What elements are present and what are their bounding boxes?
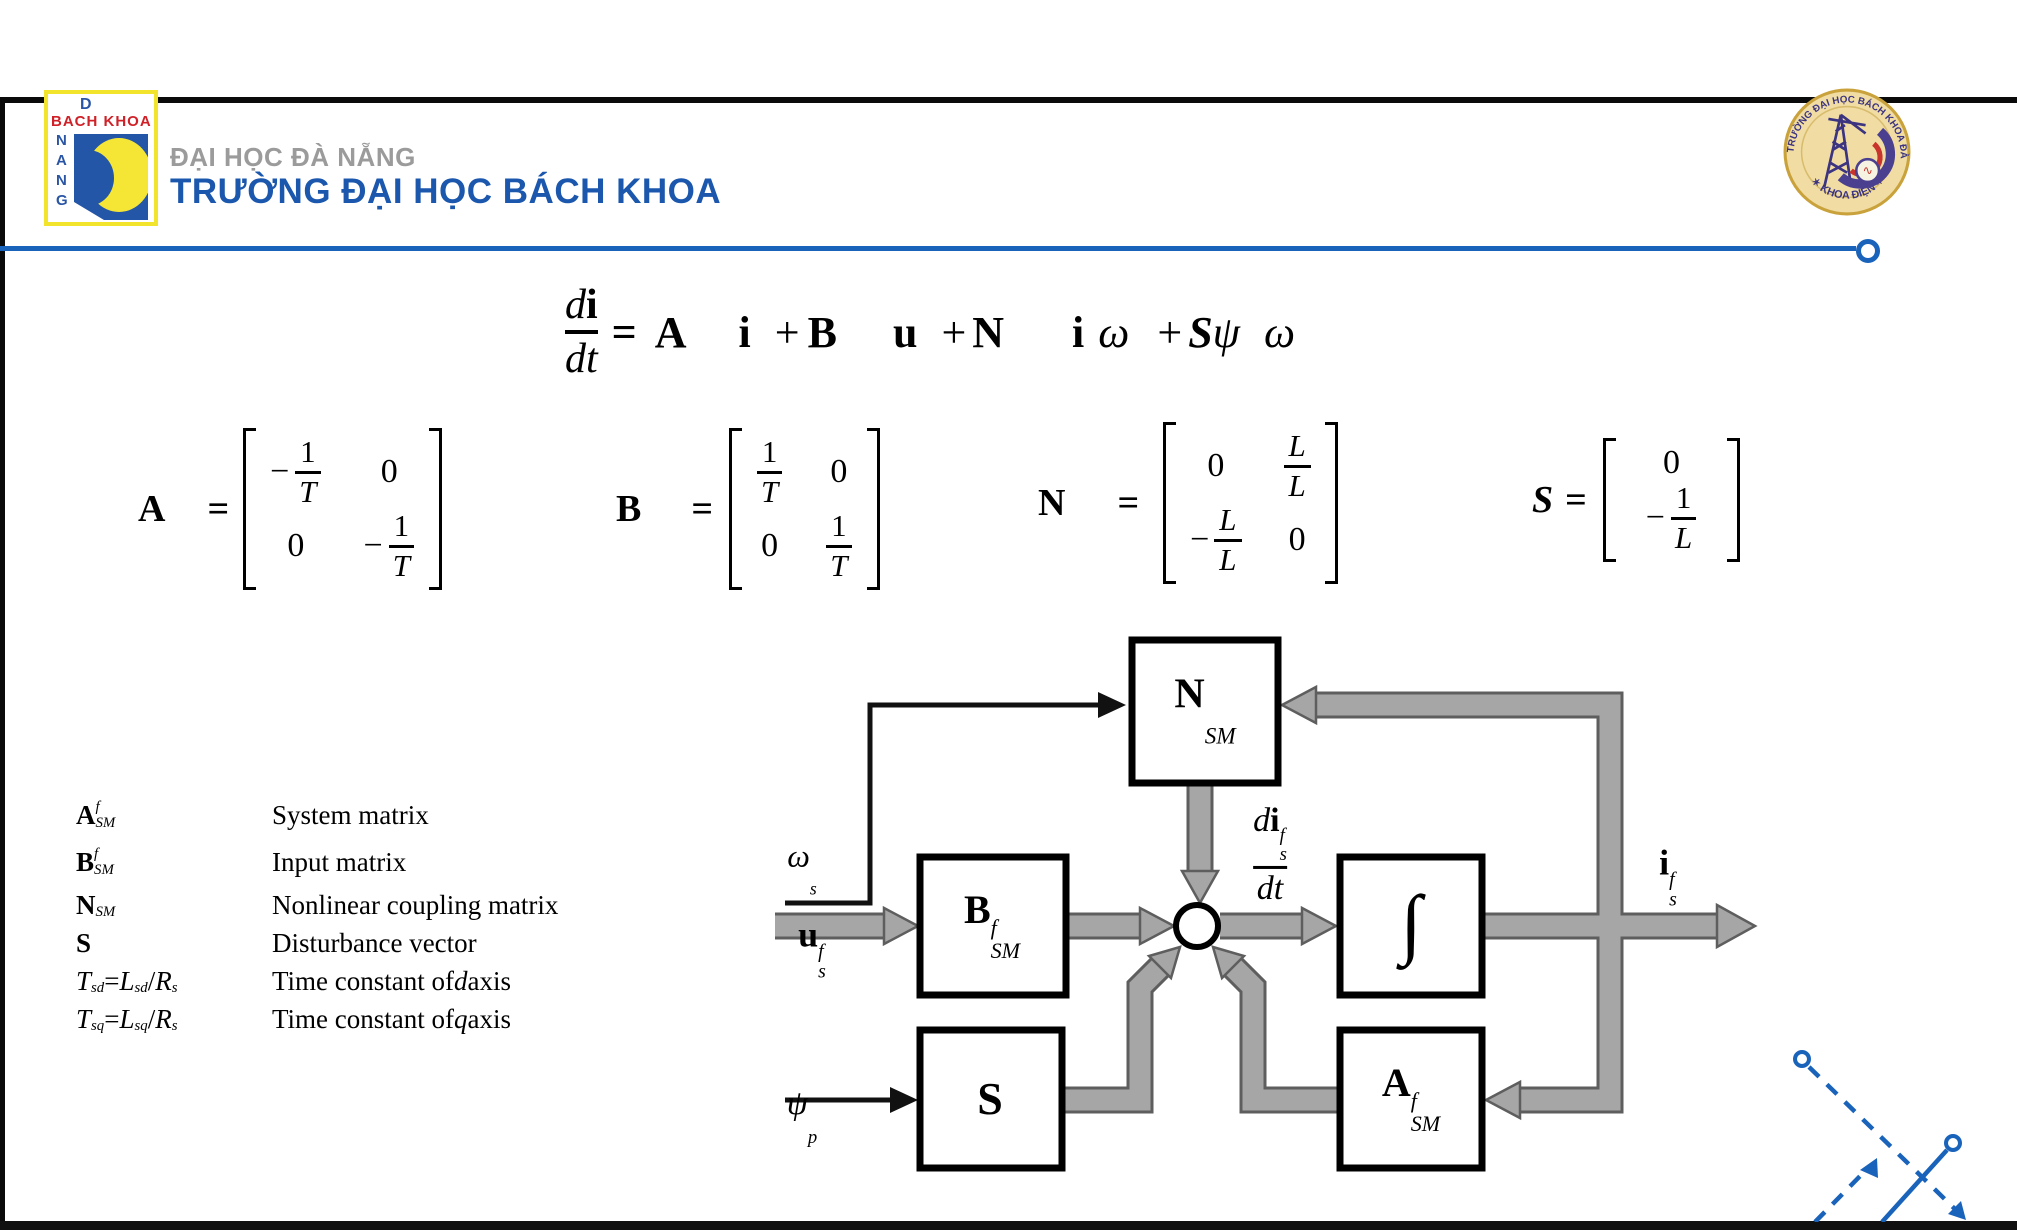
header-rule bbox=[0, 246, 1856, 251]
matrix-entry-text: L bbox=[1675, 520, 1692, 555]
legend-symbol: N SM bbox=[76, 886, 272, 924]
text-run: fSM bbox=[1411, 1090, 1440, 1135]
text-run: ψ bbox=[1213, 307, 1240, 358]
text-run: fs bbox=[1280, 826, 1287, 864]
decoration-arrowhead-down bbox=[1948, 1201, 1966, 1220]
text-run: N bbox=[76, 890, 96, 921]
minus-sign: − bbox=[1190, 523, 1209, 557]
matrix-label: S bbox=[1532, 478, 1553, 522]
text-run: q bbox=[454, 1004, 468, 1035]
matrix-cell: 1T bbox=[825, 510, 852, 582]
integrator-symbol: ∫ bbox=[1400, 884, 1421, 962]
left-bracket bbox=[729, 428, 742, 590]
matrix-entry-text: T bbox=[299, 474, 316, 509]
slide-page: D BACH KHOA N A N G ĐẠI HỌC ĐÀ NẴNG TRƯỜ… bbox=[0, 0, 2017, 1230]
header-rule-dot bbox=[1856, 239, 1880, 263]
bracketed-matrix: −1T00−1T bbox=[243, 428, 442, 590]
text-run: axis bbox=[468, 1004, 512, 1035]
matrix-entry-text: 1 bbox=[762, 434, 778, 469]
minus-sign: − bbox=[364, 529, 383, 563]
legend-symbol: BfSM bbox=[76, 839, 272, 886]
text-run: A bbox=[138, 488, 165, 530]
matrix-label: B bbox=[616, 487, 641, 531]
legend-description: System matrix bbox=[272, 792, 558, 839]
legend-symbol: S bbox=[76, 924, 272, 962]
text-run: B bbox=[964, 887, 991, 932]
matrix-N: N=0LL−LL0 bbox=[1038, 422, 1338, 584]
psi-p-label: ψ p bbox=[787, 1087, 817, 1147]
decoration-arrowhead-up bbox=[1860, 1158, 1878, 1178]
u-s-f-label: ufs bbox=[798, 916, 826, 981]
block-diagram-svg bbox=[770, 615, 1770, 1215]
right-bracket bbox=[429, 428, 442, 590]
text-run: B bbox=[616, 488, 641, 530]
i-s-f-label: ifs bbox=[1659, 844, 1677, 909]
text-run: d bbox=[1257, 870, 1274, 907]
slide-bottom-bar bbox=[0, 1221, 2017, 1230]
matrix-entry-text: L bbox=[1289, 468, 1306, 503]
text-run: fSM bbox=[991, 917, 1020, 962]
text-run: Input matrix bbox=[272, 847, 406, 878]
legend-description: Time constant of d axis bbox=[272, 962, 558, 1000]
text-run: N bbox=[1038, 482, 1065, 524]
legend-description: Nonlinear coupling matrix bbox=[272, 886, 558, 924]
text-run: fSM bbox=[96, 800, 116, 830]
matrix-cell: 0 bbox=[1289, 523, 1306, 557]
equation-numerator: di bbox=[565, 283, 598, 327]
text-run: i bbox=[586, 282, 598, 328]
matrix-B: B=1T001T bbox=[616, 428, 880, 590]
text-run: Time constant of bbox=[272, 1004, 454, 1035]
matrix-cell: LL bbox=[1284, 430, 1311, 502]
matrix-grid: 0−1L bbox=[1616, 438, 1727, 562]
matrix-cell: −LL bbox=[1190, 504, 1241, 576]
text-run: S bbox=[1188, 307, 1212, 358]
matrix-entry-text: 0 bbox=[1289, 523, 1306, 557]
bsm-block-label: BfSM bbox=[964, 890, 1020, 962]
didt-numerator: difs bbox=[1253, 803, 1287, 864]
bracketed-matrix: 0−1L bbox=[1603, 438, 1740, 562]
logo-letter-n1: N bbox=[56, 132, 67, 149]
text-run: S bbox=[76, 928, 91, 959]
matrix-grid: 1T001T bbox=[742, 428, 867, 590]
decoration-dashed-line-2 bbox=[1815, 1168, 1868, 1222]
didt-fraction: difs dt bbox=[1253, 803, 1287, 907]
matrix-entry-text: 1 bbox=[300, 434, 316, 469]
text-run: d bbox=[1253, 802, 1270, 839]
omega-s-label: ω s bbox=[787, 840, 816, 899]
text-run: i bbox=[1270, 802, 1279, 839]
equals-sign: = bbox=[1117, 481, 1139, 525]
text-run: = bbox=[612, 307, 637, 358]
left-bracket bbox=[243, 428, 256, 590]
state-equation: di dt =Ai+Bu+Niω+Sψω bbox=[565, 283, 1295, 381]
matrix-entry-text: 0 bbox=[381, 455, 398, 489]
matrix-entry-text: 0 bbox=[1207, 449, 1224, 483]
matrix-label: A bbox=[138, 487, 165, 531]
matrix-label: N bbox=[1038, 481, 1065, 525]
minus-sign: − bbox=[1646, 501, 1665, 535]
decoration-ring-1 bbox=[1795, 1052, 1809, 1066]
text-run: sd bbox=[91, 966, 104, 996]
legend-symbol: AfSM bbox=[76, 792, 272, 839]
matrix-entry-text: 1 bbox=[394, 508, 410, 543]
text-run: B bbox=[76, 847, 94, 878]
text-run: ω bbox=[1098, 307, 1129, 358]
bracketed-matrix: 1T001T bbox=[729, 428, 880, 590]
text-run: B bbox=[808, 307, 837, 358]
matrix-entry-text: L bbox=[1289, 428, 1306, 463]
decoration-dashed-line-1 bbox=[1809, 1067, 1958, 1212]
matrix-entry-text: T bbox=[830, 548, 847, 583]
text-run: u bbox=[798, 914, 818, 954]
text-run: + bbox=[1157, 307, 1182, 358]
text-run: R bbox=[155, 1004, 172, 1035]
text-run: SM bbox=[1205, 701, 1236, 748]
seal-sine-symbol: ∿ bbox=[1862, 164, 1872, 178]
text-run: axis bbox=[468, 966, 512, 997]
bach-khoa-logo: D BACH KHOA N A N G bbox=[44, 90, 158, 226]
text-run: d bbox=[454, 966, 468, 997]
right-bracket bbox=[867, 428, 880, 590]
text-run: s bbox=[172, 1004, 178, 1034]
logo-blue-square bbox=[74, 134, 148, 220]
text-run: d bbox=[565, 336, 586, 382]
slide-top-border bbox=[0, 97, 2017, 103]
matrix-entry-text: 0 bbox=[1663, 446, 1680, 480]
logo-letter-a: A bbox=[56, 152, 67, 169]
text-run: T bbox=[76, 966, 91, 997]
matrix-fraction: 1T bbox=[388, 510, 415, 582]
text-run: + bbox=[775, 307, 800, 358]
text-run: t bbox=[586, 336, 598, 382]
text-run: ω bbox=[787, 838, 810, 874]
text-run: s bbox=[810, 862, 817, 898]
summing-junction bbox=[1176, 905, 1218, 947]
matrix-S: S=0−1L bbox=[1532, 438, 1740, 562]
equals-sign: = bbox=[207, 487, 229, 531]
matrix-cell: −1T bbox=[270, 436, 321, 508]
matrix-grid: 0LL−LL0 bbox=[1176, 422, 1325, 584]
matrix-cell: 0 bbox=[761, 529, 778, 563]
decoration-solid-line bbox=[1882, 1150, 1947, 1222]
matrix-entry-text: 1 bbox=[831, 508, 847, 543]
matrix-entry-text: L bbox=[1219, 542, 1236, 577]
matrix-fraction: 1T bbox=[825, 510, 852, 582]
matrix-entry-text: 0 bbox=[287, 529, 304, 563]
text-run: fs bbox=[818, 941, 826, 981]
matrix-grid: −1T00−1T bbox=[256, 428, 429, 590]
text-run: d bbox=[565, 282, 586, 328]
matrix-cell: 0 bbox=[830, 455, 847, 489]
symbol-legend: AfSMSystem matrixBfSMInput matrixN SMNon… bbox=[76, 792, 558, 1038]
nsm-block-label: N SM bbox=[1174, 674, 1235, 749]
equals-sign: = bbox=[1565, 478, 1587, 522]
text-run: sd bbox=[135, 966, 148, 996]
text-run: ω bbox=[1264, 307, 1295, 358]
text-run: N bbox=[972, 307, 1004, 358]
legend-description: Disturbance vector bbox=[272, 924, 558, 962]
di-dt-fraction: di dt bbox=[565, 283, 598, 381]
matrix-cell: 0 bbox=[1207, 449, 1224, 483]
right-bracket bbox=[1325, 422, 1338, 584]
asm-block-label: AfSM bbox=[1382, 1063, 1440, 1135]
text-run: S bbox=[1532, 479, 1553, 521]
matrix-fraction: 1T bbox=[756, 436, 783, 508]
text-run: SM bbox=[96, 890, 116, 920]
equation-rhs: =Ai+Bu+Niω+Sψω bbox=[612, 307, 1295, 358]
block-diagram: N SM BfSM ∫ AfSM S ω s ufs ψ p ifs difs … bbox=[770, 615, 1770, 1215]
matrix-cell: 0 bbox=[1663, 446, 1680, 480]
equals-sign: = bbox=[691, 487, 713, 531]
didt-bar bbox=[1253, 866, 1287, 869]
matrix-entry-text: 0 bbox=[761, 529, 778, 563]
text-run: R bbox=[155, 966, 172, 997]
matrix-cell: −1T bbox=[364, 510, 415, 582]
matrix-entry-text: 1 bbox=[1676, 480, 1692, 515]
matrix-A: A=−1T00−1T bbox=[138, 428, 442, 590]
legend-symbol: T sd = L sd/R s bbox=[76, 962, 272, 1000]
text-run: Disturbance vector bbox=[272, 928, 477, 959]
matrix-cell: 0 bbox=[287, 529, 304, 563]
text-run: i bbox=[739, 307, 751, 358]
right-bracket bbox=[1727, 438, 1740, 562]
corner-decoration bbox=[1770, 1040, 2017, 1222]
left-bracket bbox=[1163, 422, 1176, 584]
khoa-dien-seal: TRƯỜNG ĐẠI HỌC BÁCH KHOA ĐÀ NẴNG ✶ KHOA … bbox=[1783, 88, 1911, 216]
legend-description: Input matrix bbox=[272, 839, 558, 886]
text-run: A bbox=[1382, 1060, 1411, 1105]
text-run: u bbox=[893, 307, 917, 358]
didt-label: difs dt bbox=[1253, 803, 1287, 907]
matrix-entry-text: T bbox=[393, 548, 410, 583]
legend-description: Time constant of q axis bbox=[272, 1000, 558, 1038]
logo-letter-n2: N bbox=[56, 172, 67, 189]
s-block-label: S bbox=[977, 1076, 1003, 1122]
matrix-fraction: LL bbox=[1214, 504, 1241, 576]
text-run: = bbox=[104, 966, 119, 997]
text-run: fSM bbox=[94, 847, 114, 877]
text-run: S bbox=[977, 1073, 1003, 1124]
matrix-entry-text: 0 bbox=[830, 455, 847, 489]
text-run: i bbox=[1072, 307, 1084, 358]
matrix-cell: 1T bbox=[756, 436, 783, 508]
university-name: ĐẠI HỌC ĐÀ NẴNG bbox=[170, 142, 416, 173]
text-run: = bbox=[104, 1004, 119, 1035]
left-bracket bbox=[1603, 438, 1616, 562]
slide-left-border bbox=[0, 97, 5, 1230]
text-run: ∫ bbox=[1400, 879, 1421, 966]
fraction-bar bbox=[565, 330, 598, 334]
text-run: ψ bbox=[787, 1085, 808, 1122]
logo-letter-g: G bbox=[56, 192, 68, 209]
matrix-entry-text: T bbox=[761, 474, 778, 509]
text-run: A bbox=[655, 307, 687, 358]
matrix-fraction: 1T bbox=[294, 436, 321, 508]
minus-sign: − bbox=[270, 455, 289, 489]
text-run: T bbox=[76, 1004, 91, 1035]
equation-denominator: dt bbox=[565, 337, 598, 381]
matrix-cell: −1L bbox=[1646, 482, 1697, 554]
text-run: System matrix bbox=[272, 800, 429, 831]
text-run: L bbox=[119, 1004, 134, 1035]
text-run: Time constant of bbox=[272, 966, 454, 997]
bracketed-matrix: 0LL−LL0 bbox=[1163, 422, 1338, 584]
decoration-ring-2 bbox=[1946, 1136, 1960, 1150]
text-run: fs bbox=[1669, 869, 1677, 909]
text-run: sq bbox=[135, 1004, 148, 1034]
matrix-fraction: 1L bbox=[1670, 482, 1697, 554]
text-run: i bbox=[1659, 842, 1669, 882]
school-name: TRƯỜNG ĐẠI HỌC BÁCH KHOA bbox=[170, 172, 721, 212]
matrix-entry-text: L bbox=[1219, 502, 1236, 537]
text-run: t bbox=[1274, 870, 1283, 907]
text-run: L bbox=[119, 966, 134, 997]
text-run: s bbox=[172, 966, 178, 996]
text-run: Nonlinear coupling matrix bbox=[272, 890, 558, 921]
text-run: sq bbox=[91, 1004, 104, 1034]
text-run: N bbox=[1174, 672, 1204, 718]
text-run: p bbox=[808, 1109, 817, 1147]
didt-denominator: dt bbox=[1257, 871, 1283, 907]
text-run: + bbox=[941, 307, 966, 358]
legend-symbol: T sq = L sq/R s bbox=[76, 1000, 272, 1038]
matrix-fraction: LL bbox=[1284, 430, 1311, 502]
logo-letter-d: D bbox=[80, 96, 92, 114]
matrix-cell: 0 bbox=[381, 455, 398, 489]
text-run: A bbox=[76, 800, 96, 831]
logo-bach-khoa-text: BACH KHOA bbox=[51, 113, 152, 130]
